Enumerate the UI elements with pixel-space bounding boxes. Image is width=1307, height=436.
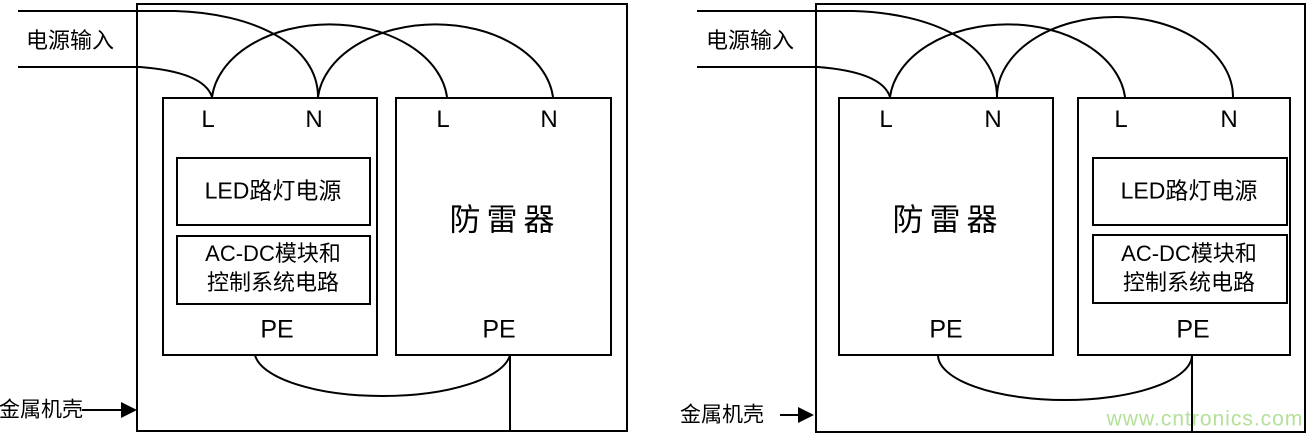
enclosure-label: 金属机壳 [0, 400, 83, 421]
led-driver-label: LED路灯电源 [205, 180, 342, 203]
acdc-module-label-line2: 控制系统电路 [207, 272, 339, 294]
acdc-module-label-line1: AC-DC模块和 [1121, 243, 1257, 265]
power-input-label: 电源输入 [26, 30, 114, 52]
diagram-canvas: 电源输入 L N L N LED路灯电源 AC-DC模块和 控制系统电路 防雷器… [0, 0, 1307, 436]
led-driver-label: LED路灯电源 [1121, 180, 1258, 203]
enclosure-arrow-head-icon [798, 407, 814, 423]
surge-protector-label: 防雷器 [893, 206, 1004, 237]
acdc-module-label-line1: AC-DC模块和 [205, 243, 341, 265]
enclosure-arrow-head-icon [121, 402, 137, 418]
terminal-n-label: N [540, 108, 557, 132]
watermark: www.cntronics.com [1107, 409, 1304, 430]
acdc-module-label-line2: 控制系统电路 [1123, 272, 1255, 294]
enclosure-label: 金属机壳 [680, 405, 764, 426]
terminal-l-label: L [201, 108, 214, 132]
power-input-label: 电源输入 [706, 30, 794, 52]
pe-label: PE [260, 318, 293, 343]
terminal-n-label: N [1220, 108, 1237, 132]
terminal-l-label: L [1114, 108, 1127, 132]
terminal-l-label: L [879, 108, 892, 132]
pe-label: PE [929, 318, 962, 343]
pe-label: PE [482, 318, 515, 343]
pe-label: PE [1176, 318, 1209, 343]
terminal-l-label: L [436, 108, 449, 132]
surge-protector-label: 防雷器 [450, 206, 561, 237]
terminal-n-label: N [305, 108, 322, 132]
terminal-n-label: N [984, 108, 1001, 132]
